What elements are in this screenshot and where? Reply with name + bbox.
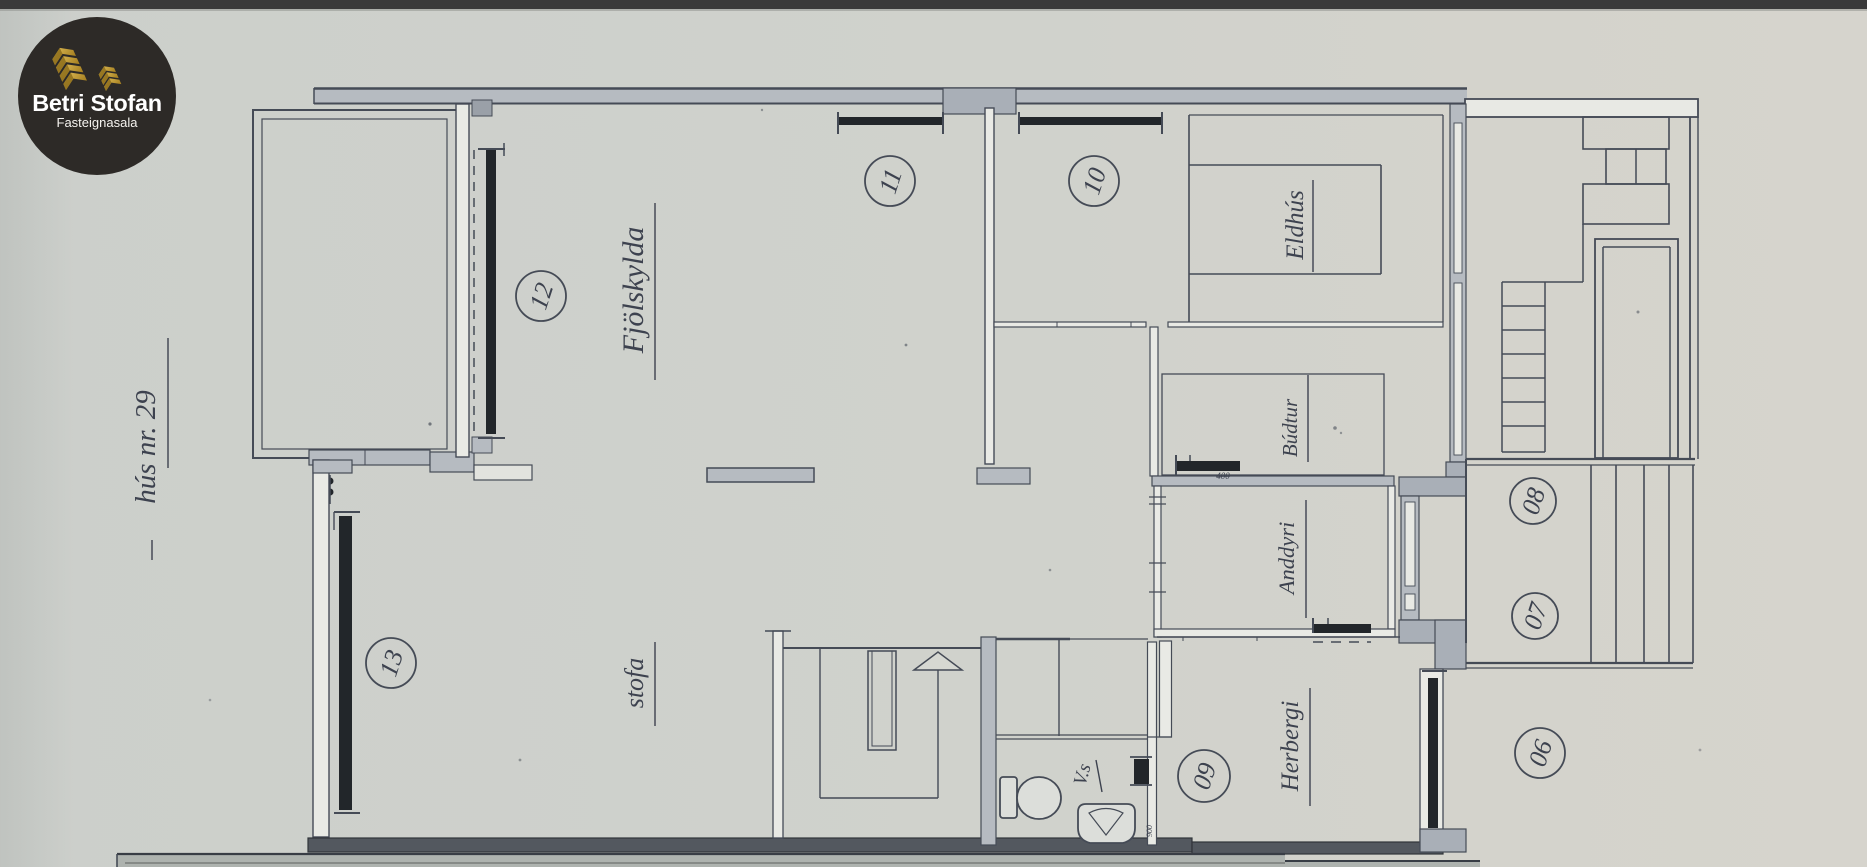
svg-text:stofa: stofa — [620, 658, 649, 709]
svg-text:Herbergi: Herbergi — [1277, 701, 1304, 793]
svg-text:Eldhús: Eldhús — [1282, 190, 1309, 260]
svg-text:hús nr. 29: hús nr. 29 — [130, 390, 162, 504]
svg-text:900: 900 — [1145, 825, 1154, 837]
svg-text:Betri Stofan: Betri Stofan — [32, 90, 162, 116]
svg-text:Anddyri: Anddyri — [1274, 522, 1299, 597]
svg-text:Búdtur: Búdtur — [1278, 398, 1302, 457]
svg-text:Fjölskylda: Fjölskylda — [617, 227, 650, 355]
svg-text:400: 400 — [1216, 471, 1230, 481]
svg-text:Fasteignasala: Fasteignasala — [57, 115, 139, 130]
